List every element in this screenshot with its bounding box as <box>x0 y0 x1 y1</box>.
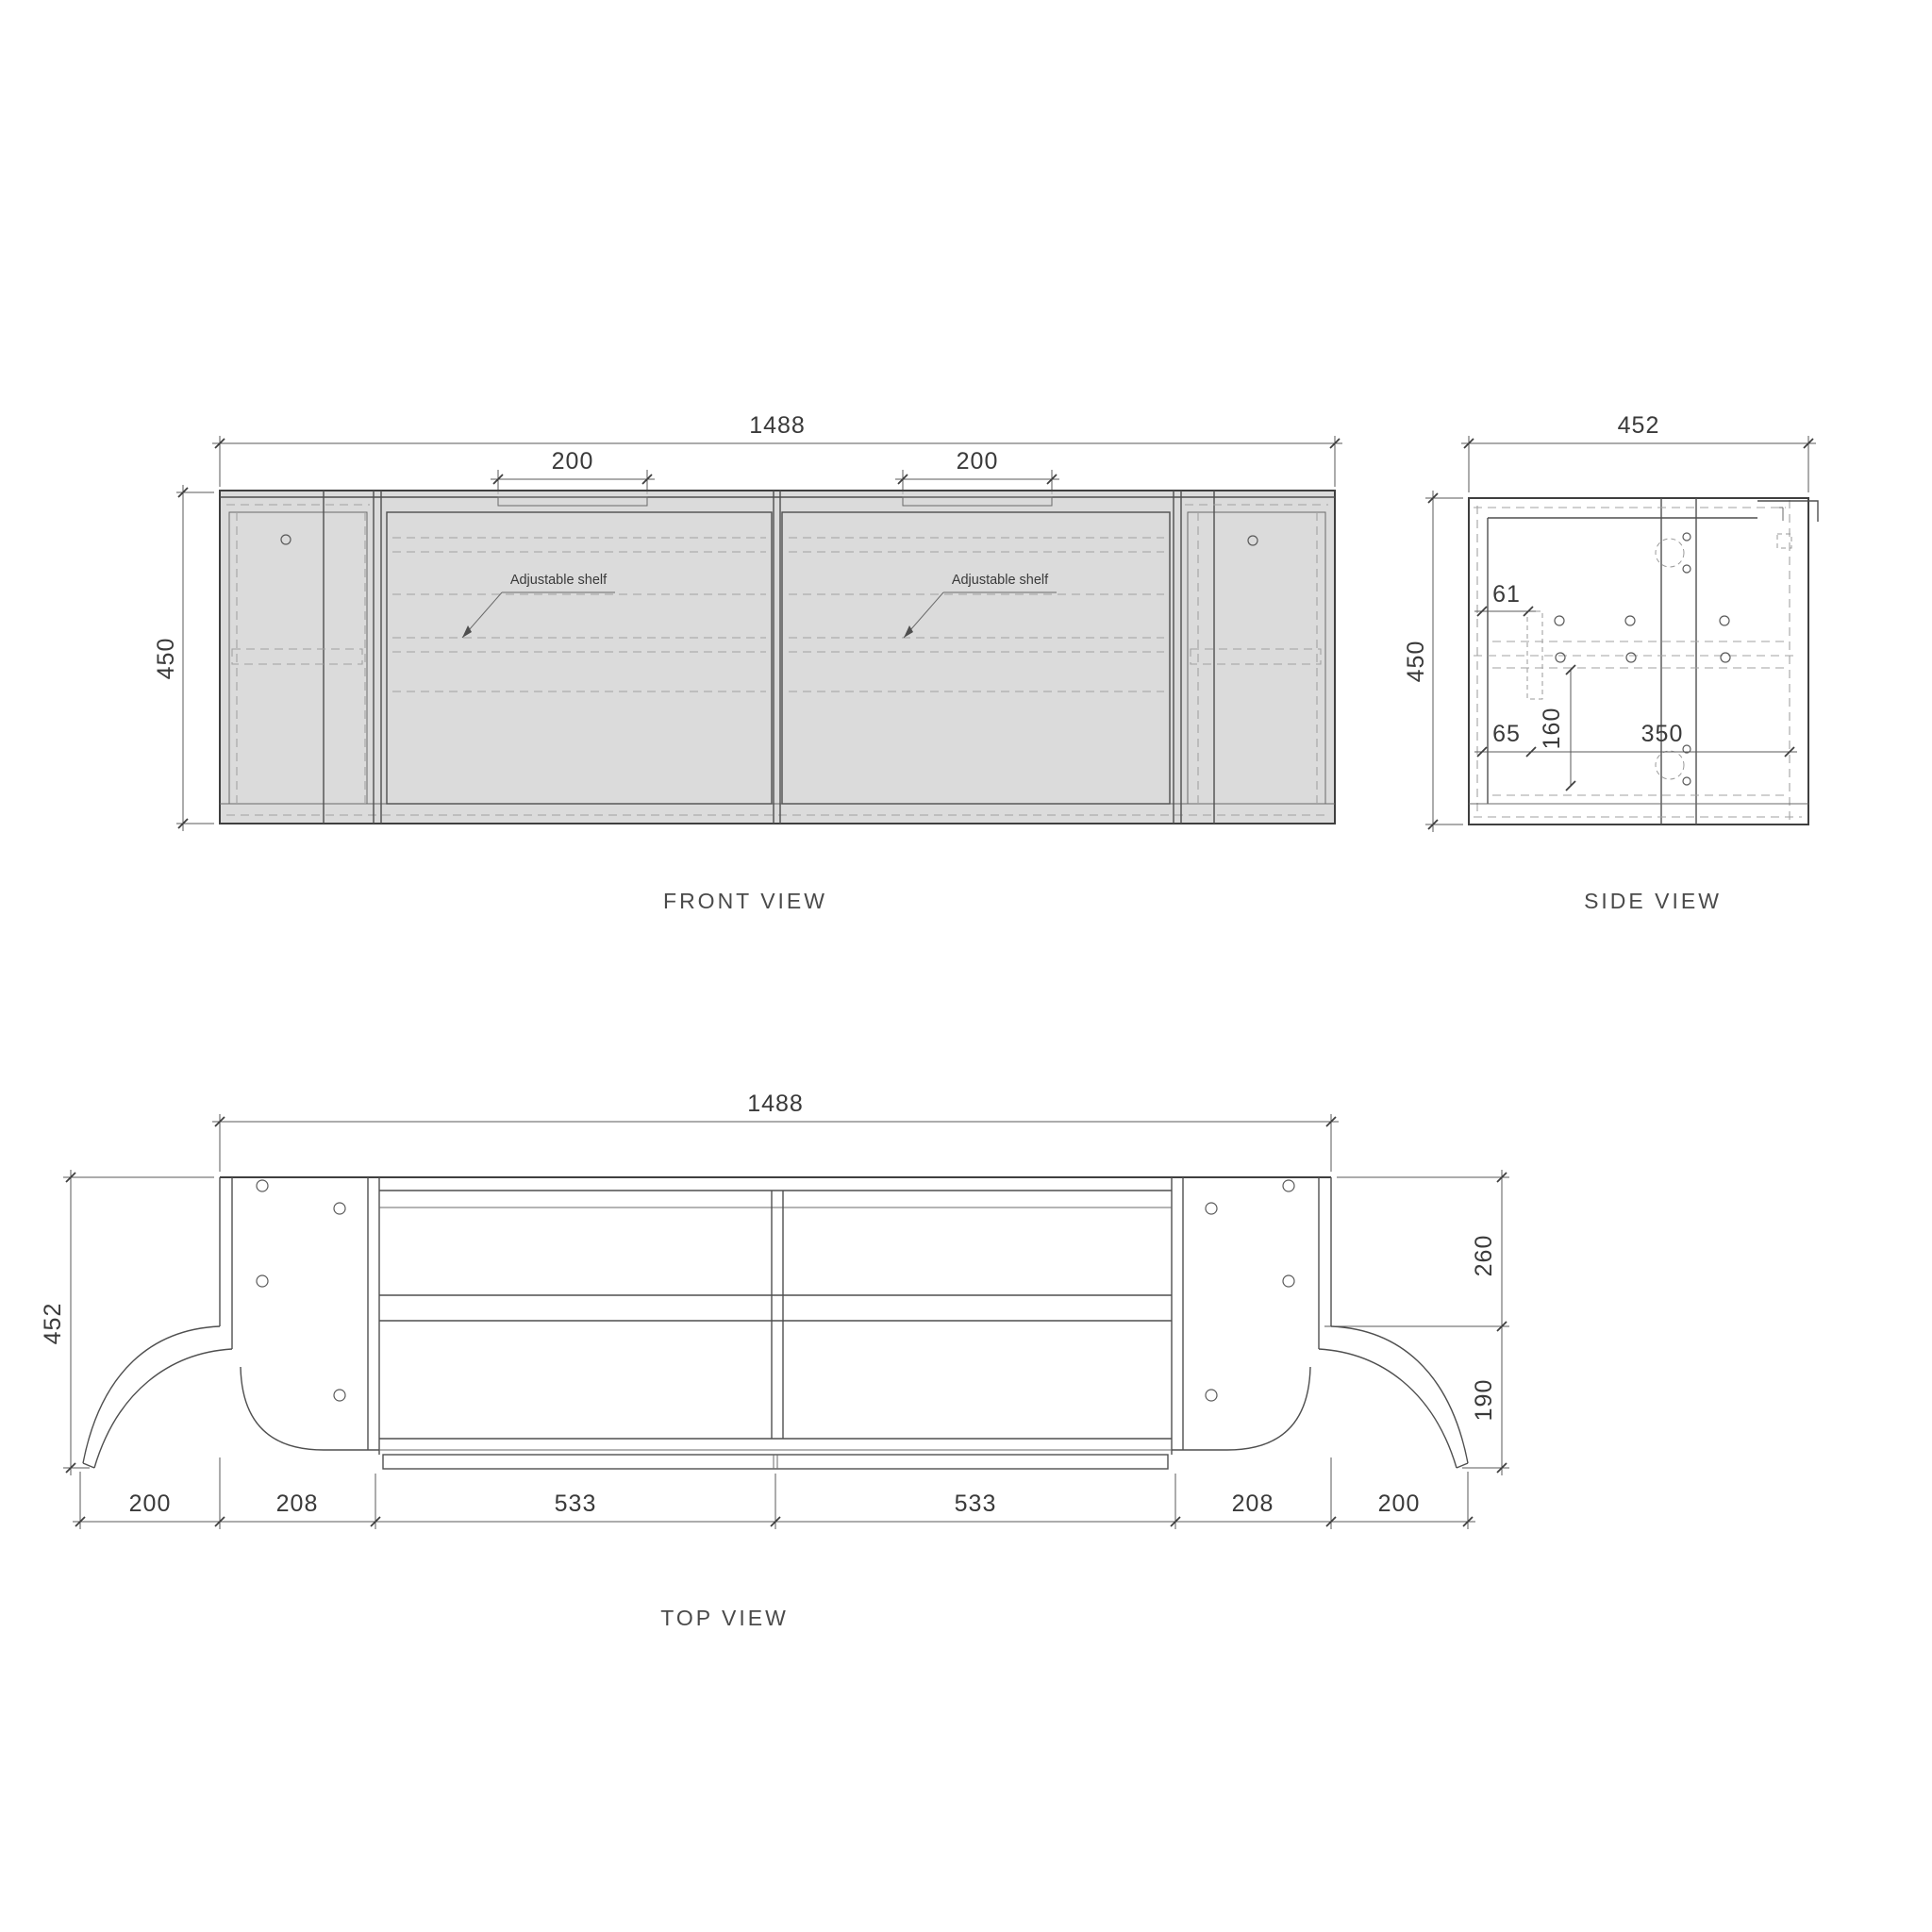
top-depth-dim-text: 452 <box>40 1303 66 1345</box>
front-handle-dim-left-text: 200 <box>552 448 594 475</box>
cabinet-drawing-svg: 1488 200 200 450 <box>0 0 1932 1932</box>
top-seg-dim-5: 208 <box>1232 1491 1274 1517</box>
top-seg-dim-1: 200 <box>129 1491 172 1517</box>
side-view-label: SIDE VIEW <box>1584 889 1722 913</box>
side-horizontal-dim-text: 350 <box>1641 721 1684 747</box>
top-seg-dim-4: 533 <box>955 1491 997 1517</box>
front-view-label: FRONT VIEW <box>663 889 827 913</box>
side-vertical-dim-text: 160 <box>1539 708 1565 750</box>
technical-drawing-page: 1488 200 200 450 <box>0 0 1932 1932</box>
top-seg-dim-3: 533 <box>555 1491 597 1517</box>
side-top-offset-text: 61 <box>1492 581 1521 608</box>
shelf-callout-right-text: Adjustable shelf <box>952 573 1049 588</box>
shelf-callout-left-text: Adjustable shelf <box>510 573 608 588</box>
side-bottom-offset-text: 65 <box>1492 721 1521 747</box>
side-height-dim-text: 450 <box>1403 641 1429 683</box>
front-handle-dim-right-text: 200 <box>957 448 999 475</box>
top-seg-dim-6: 200 <box>1378 1491 1421 1517</box>
side-width-dim-text: 452 <box>1618 412 1660 439</box>
page-background <box>0 0 1932 1932</box>
top-front-depth-text: 190 <box>1471 1379 1497 1422</box>
top-width-dim-text: 1488 <box>747 1091 804 1117</box>
top-back-depth-text: 260 <box>1471 1235 1497 1277</box>
top-view-label: TOP VIEW <box>660 1606 789 1630</box>
top-seg-dim-2: 208 <box>276 1491 319 1517</box>
front-height-dim-text: 450 <box>153 638 179 680</box>
front-width-dim-text: 1488 <box>749 412 806 439</box>
